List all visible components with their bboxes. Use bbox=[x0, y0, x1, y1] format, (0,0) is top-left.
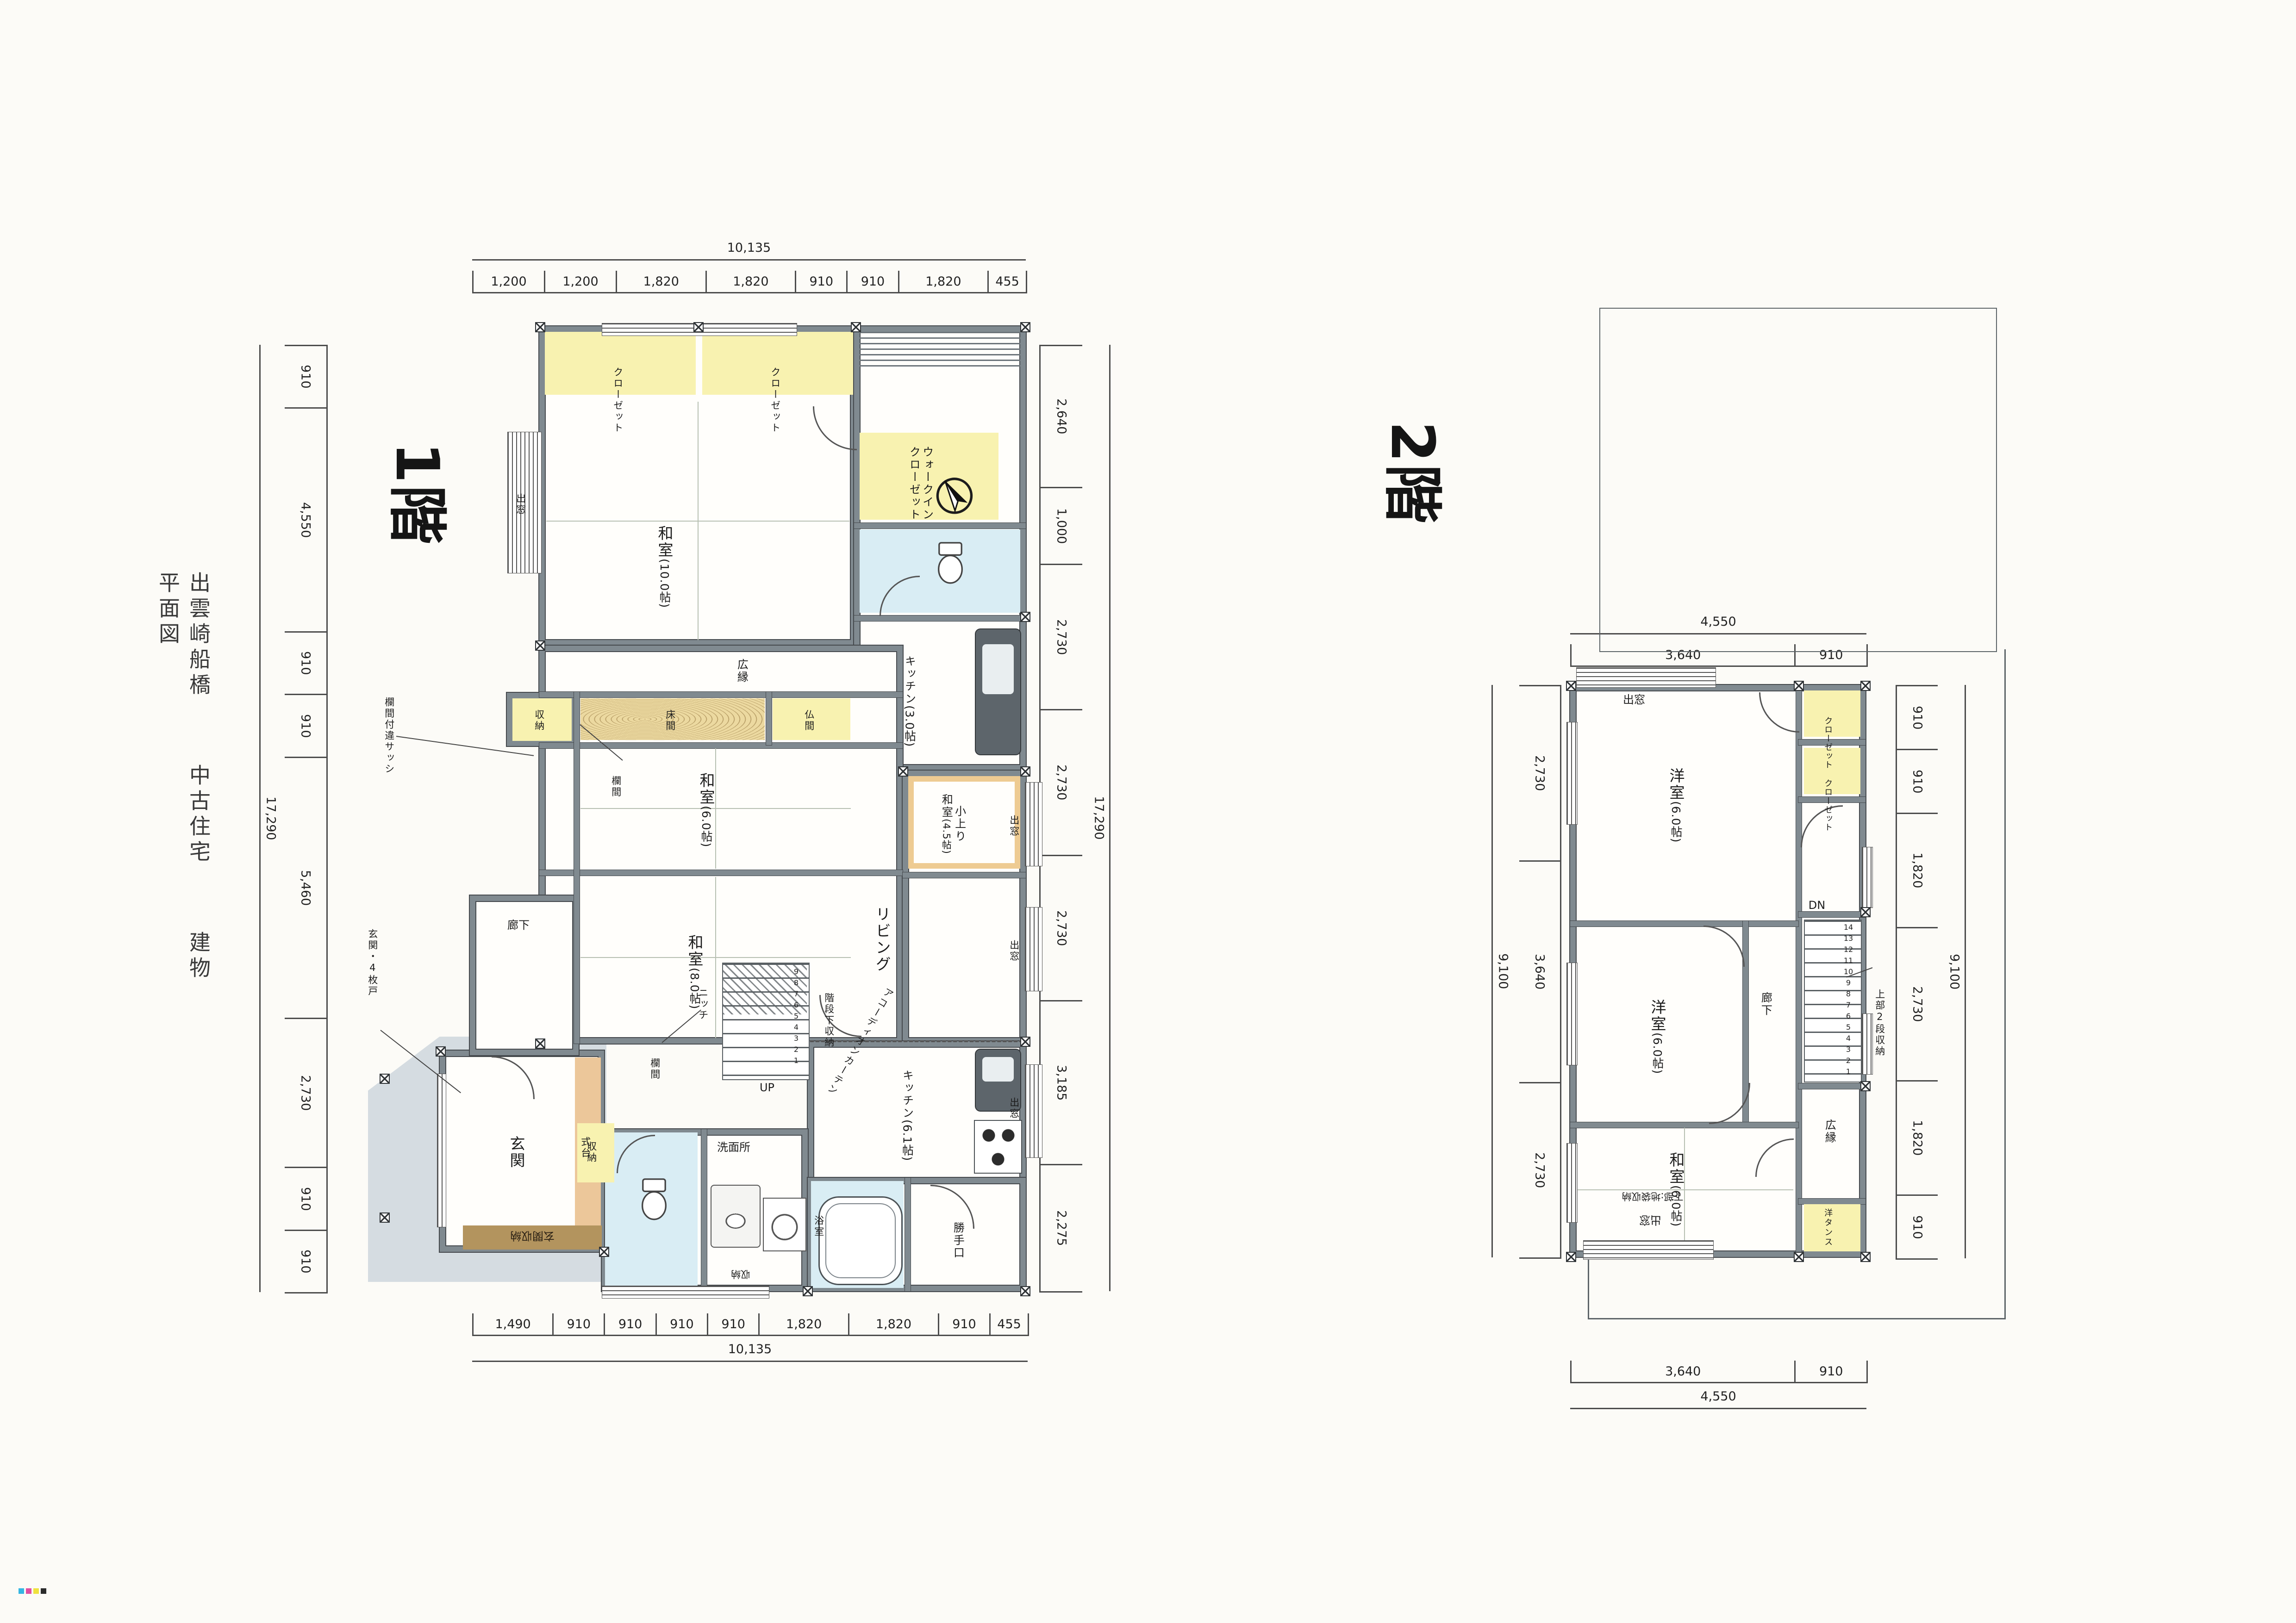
f2-wall-washitsu-top bbox=[1570, 1122, 1798, 1128]
f1-demado-kitchen-label: 出窓 bbox=[1008, 1083, 1020, 1134]
f1-dim-right-total: 17,290 bbox=[1089, 345, 1111, 1291]
f1-bay-window-living bbox=[1025, 907, 1042, 991]
roof-outline-bottom bbox=[1588, 1318, 2006, 1319]
f1-wall-row3 bbox=[539, 870, 903, 876]
f2-dim-bottom-total: 4,550 bbox=[1570, 1389, 1866, 1409]
post-icon bbox=[599, 1247, 609, 1257]
post-icon bbox=[1860, 1081, 1871, 1091]
f2-dim-left: 2,7303,6402,730 bbox=[1519, 685, 1561, 1259]
washing-machine-icon bbox=[763, 1198, 806, 1251]
f1-ranma-label: 欄間 bbox=[610, 761, 622, 812]
f1-tokonoma-label: 床間 bbox=[664, 700, 676, 741]
f1-dim-bottom: 1,4909109109109101,8201,820910455 bbox=[472, 1313, 1029, 1336]
post-icon bbox=[898, 766, 908, 777]
f1-shuno-small-label: 収納 bbox=[720, 1268, 761, 1280]
f1-koagari-label: 小上り 和室(4.5帖) bbox=[940, 782, 975, 865]
f1-yokushitsu-label: 浴室 bbox=[813, 1203, 824, 1250]
f2-yoshitsu-a-label: 洋室(6.0帖) bbox=[1666, 750, 1693, 861]
f1-stair-numbers: 987654321 bbox=[787, 966, 805, 1066]
f2-demado-btm-label: 出窓 bbox=[1625, 1213, 1676, 1226]
post-icon bbox=[535, 322, 545, 332]
f2-window-right1 bbox=[1862, 847, 1873, 908]
f1-washitsu10-tatami bbox=[546, 402, 849, 640]
f1-genkan-4panel-door bbox=[437, 1074, 446, 1227]
f1-wall-row1 bbox=[539, 692, 903, 697]
post-icon bbox=[535, 1038, 545, 1049]
f2-jobu-label: 上部2段収納 bbox=[1874, 963, 1885, 1083]
f1-washitsu10-label: 和室(10.0帖) bbox=[655, 497, 682, 636]
f2-stairs-dn-label: DN bbox=[1801, 899, 1833, 912]
bathtub-icon bbox=[818, 1196, 903, 1285]
f2-wall-stairs-top bbox=[1798, 912, 1865, 917]
f1-shikidai-label: 式台 bbox=[580, 1125, 591, 1171]
f1-closet2-label: クローゼット bbox=[769, 340, 781, 460]
f2-yotansu-label: 洋タンス bbox=[1823, 1202, 1833, 1253]
post-icon bbox=[1794, 1252, 1804, 1262]
f1-wall-living bbox=[903, 872, 1026, 878]
post-icon bbox=[1020, 322, 1030, 332]
f1-note-genkan: 玄関・4枚戸 bbox=[367, 898, 378, 1027]
f1-dim-top-total: 10,135 bbox=[472, 241, 1026, 261]
post-icon bbox=[1860, 1252, 1871, 1262]
f1-closet1-label: クローゼット bbox=[612, 340, 624, 460]
f1-rouka-label: 廊下 bbox=[491, 919, 546, 932]
f1-demado-left-label: 出窓 bbox=[515, 472, 526, 537]
f2-hiroen-label: 広縁 bbox=[1823, 1106, 1836, 1157]
f1-dim-left: 9104,5509109105,4602,730910910 bbox=[285, 345, 328, 1293]
f2-dim-right-total: 9,100 bbox=[1944, 685, 1966, 1258]
f1-bay-window-kitchen bbox=[1025, 1064, 1042, 1158]
f1-wic-shutter bbox=[860, 332, 1020, 369]
f1-washitsu6-label: 和室(6.0帖) bbox=[697, 759, 724, 861]
f1-genkan-label: 玄関 bbox=[507, 1120, 525, 1185]
f1-living-label: リビング bbox=[873, 886, 891, 993]
f1-accordion-line bbox=[810, 1040, 1023, 1042]
post-icon bbox=[380, 1213, 390, 1223]
f1-washitsu8-tatami bbox=[580, 877, 851, 1038]
f1-wic-label: ウォークイン クローゼット bbox=[907, 407, 934, 560]
roof-outline-left bbox=[1588, 1257, 1589, 1319]
f2-wall-hiroen-top bbox=[1798, 1083, 1865, 1089]
f2-kabu-label: 下部:地袋収納 bbox=[1597, 1190, 1708, 1202]
f2-wall-right-col bbox=[1796, 685, 1802, 1257]
washbasin-icon bbox=[711, 1185, 761, 1248]
f2-yoshitsu-b-label: 洋室(6.0帖) bbox=[1648, 981, 1675, 1092]
f1-butsuma-label: 仏間 bbox=[803, 700, 815, 741]
floor-plan-sheet: 出雲崎船橋 中古住宅 建物平面図 1階 2階 10,135 1,2001,200… bbox=[0, 0, 2296, 1623]
f1-wall-hiroen-strip bbox=[574, 692, 580, 1044]
f1-kaidan-shita-label: 階段下収納 bbox=[823, 970, 835, 1071]
f2-wall-yoshitsu bbox=[1570, 921, 1798, 927]
f1-wall-toilet-btm bbox=[854, 616, 1026, 621]
f1-window-bottom bbox=[602, 1286, 769, 1299]
f1-dim-left-total: 17,290 bbox=[259, 345, 281, 1292]
floor2-label: 2階 bbox=[1375, 421, 1460, 525]
title-part-2: 中古住宅 bbox=[186, 764, 211, 866]
floor1-label: 1階 bbox=[380, 442, 465, 546]
f2-window-left3 bbox=[1566, 1143, 1578, 1223]
f1-hiroen-label: 広縁 bbox=[735, 648, 748, 694]
f1-katteguchi-label: 勝手口 bbox=[951, 1208, 964, 1273]
f1-demado-right2-label: 出窓 bbox=[1008, 926, 1020, 976]
f2-stair-numbers: 1413121110987654321 bbox=[1840, 922, 1857, 1077]
f2-window-left1 bbox=[1566, 722, 1578, 825]
post-icon bbox=[1020, 612, 1030, 622]
f2-dim-bottom: 3,640910 bbox=[1570, 1361, 1868, 1383]
f2-bay-window-bottom bbox=[1583, 1240, 1714, 1260]
toilet-icon bbox=[935, 541, 966, 588]
f1-senmenjo-label: 洗面所 bbox=[704, 1141, 764, 1154]
roof-outline-right bbox=[2004, 649, 2006, 1319]
post-icon bbox=[1860, 681, 1871, 691]
post-icon bbox=[1860, 907, 1871, 917]
post-icon bbox=[1566, 1252, 1576, 1262]
f1-dim-top: 1,2001,2001,8201,8209109101,820455 bbox=[472, 271, 1027, 293]
f1-demado-right1-label: 出窓 bbox=[1008, 801, 1020, 852]
post-icon bbox=[436, 1046, 446, 1057]
f2-demado-top-label: 出窓 bbox=[1606, 693, 1662, 706]
f1-kitchen3-label: キッチン(3.0帖) bbox=[903, 648, 925, 754]
sheet-title: 出雲崎船橋 中古住宅 建物平面図 bbox=[153, 572, 214, 988]
post-icon bbox=[851, 322, 861, 332]
post-icon bbox=[1020, 1286, 1030, 1296]
kitchen-sink-icon bbox=[976, 629, 1020, 754]
post-icon bbox=[535, 640, 545, 651]
post-icon bbox=[1566, 681, 1576, 691]
f1-wall-katte bbox=[905, 1178, 911, 1291]
f1-genkan-shuno-label: 玄関収納 bbox=[491, 1229, 574, 1242]
post-icon bbox=[1020, 1037, 1030, 1047]
toilet-icon bbox=[639, 1178, 669, 1224]
f1-wall-toilet-top bbox=[854, 523, 1026, 529]
f2-window-right2 bbox=[1862, 1014, 1873, 1075]
f1-ranma2-label: 欄間 bbox=[649, 1044, 661, 1094]
f1-dim-right: 2,6401,0002,7302,7302,7303,1852,275 bbox=[1039, 345, 1082, 1293]
title-part-1: 出雲崎船橋 bbox=[186, 572, 211, 699]
post-icon bbox=[1794, 681, 1804, 691]
post-icon bbox=[380, 1074, 390, 1084]
f1-shuno-label: 収納 bbox=[533, 700, 545, 741]
f1-bay-window-koagari bbox=[1025, 782, 1042, 866]
f2-dim-right: 9109101,8202,7301,820910 bbox=[1896, 685, 1938, 1260]
f2-dim-left-total: 9,100 bbox=[1491, 685, 1513, 1257]
f2-window-left2 bbox=[1566, 963, 1578, 1065]
f1-kitchen6-label: キッチン(6.1帖) bbox=[900, 1064, 923, 1166]
f2-closet-b-label: クローゼット bbox=[1823, 752, 1833, 858]
post-icon bbox=[803, 1286, 813, 1296]
print-marks bbox=[19, 1588, 46, 1594]
f1-wall-row2 bbox=[539, 743, 903, 748]
f1-nicchi-label: ニッチ bbox=[697, 972, 709, 1037]
f2-bay-window-top bbox=[1576, 667, 1716, 688]
f2-rouka-label: 廊下 bbox=[1759, 976, 1772, 1032]
post-icon bbox=[693, 322, 704, 332]
f1-note-sash: 欄間付違サッシ bbox=[383, 671, 395, 801]
f1-wall-tokonoma bbox=[766, 692, 772, 745]
roof-outline-top bbox=[1599, 308, 1997, 652]
f1-stairs-up-label: UP bbox=[751, 1081, 783, 1094]
f1-dim-bottom-total: 10,135 bbox=[472, 1342, 1028, 1362]
post-icon bbox=[1020, 766, 1030, 777]
